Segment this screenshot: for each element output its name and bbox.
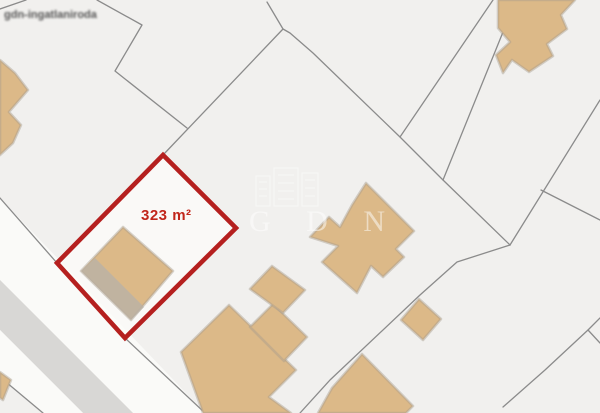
- cadastral-map-canvas[interactable]: 323 m² G D N gdn-ingatlaniroda: [0, 0, 600, 413]
- logo-letters: G D N: [249, 205, 399, 238]
- area-label: 323 m²: [141, 207, 192, 224]
- corner-watermark-text: gdn-ingatlaniroda: [4, 9, 98, 21]
- map-svg: 323 m² G D N gdn-ingatlaniroda: [0, 0, 600, 413]
